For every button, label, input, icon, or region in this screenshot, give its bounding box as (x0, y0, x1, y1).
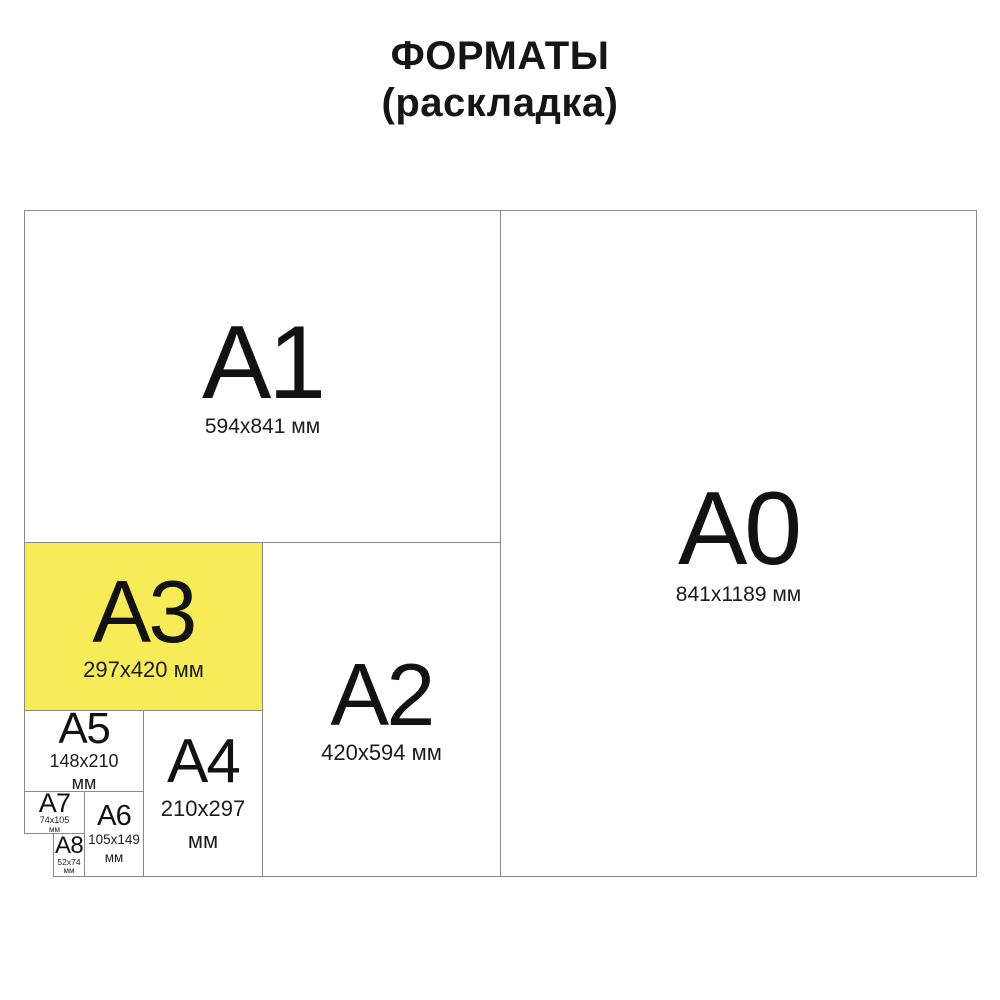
format-unit-a6: мм (105, 850, 124, 865)
format-dimensions-a1: 594x841 мм (205, 415, 320, 439)
format-sheet-a3-highlighted: A3 297x420 мм (24, 542, 263, 711)
format-label-a7: A7 (39, 791, 70, 815)
format-label-a3: A3 (92, 570, 194, 654)
format-sheet-a5: A5 148x210 мм (24, 710, 144, 792)
format-dimensions-a2: 420x594 мм (321, 740, 442, 766)
format-sheet-a1: A1 594x841 мм (24, 210, 501, 543)
format-label-a6: A6 (97, 803, 131, 831)
format-dimensions-a0: 841x1189 мм (676, 583, 801, 607)
format-sheet-a4: A4 210x297 мм (143, 710, 263, 877)
page-title-line1: ФОРМАТЫ (0, 33, 1000, 80)
format-dimensions-a6: 105x149 (88, 832, 140, 847)
format-sheet-a7: A7 74x105 мм (24, 791, 85, 834)
formats-diagram: ФОРМАТЫ (раскладка) A1 594x841 мм A0 841… (0, 0, 1000, 1000)
format-label-a4: A4 (167, 733, 239, 792)
format-label-a0: A0 (678, 480, 799, 579)
format-sheet-a0: A0 841x1189 мм (500, 210, 977, 877)
format-dimensions-a7: 74x105 (40, 816, 70, 825)
format-dimensions-a4: 210x297 (161, 796, 245, 822)
page-title-line2: (раскладка) (0, 80, 1000, 127)
format-unit-a8: мм (64, 867, 75, 875)
format-dimensions-a8: 52x74 (57, 858, 80, 867)
format-sheet-a8: A8 52x74 мм (53, 833, 85, 877)
format-dimensions-a3: 297x420 мм (83, 657, 204, 683)
format-unit-a4: мм (188, 828, 218, 854)
format-label-a1: A1 (202, 314, 323, 413)
page-title: ФОРМАТЫ (раскладка) (0, 33, 1000, 127)
format-label-a8: A8 (55, 835, 83, 857)
format-sheet-a6: A6 105x149 мм (84, 791, 144, 877)
format-sheet-a2: A2 420x594 мм (262, 542, 501, 877)
format-label-a5: A5 (58, 708, 109, 750)
format-dimensions-a5: 148x210 (49, 751, 118, 772)
format-label-a2: A2 (330, 653, 432, 737)
